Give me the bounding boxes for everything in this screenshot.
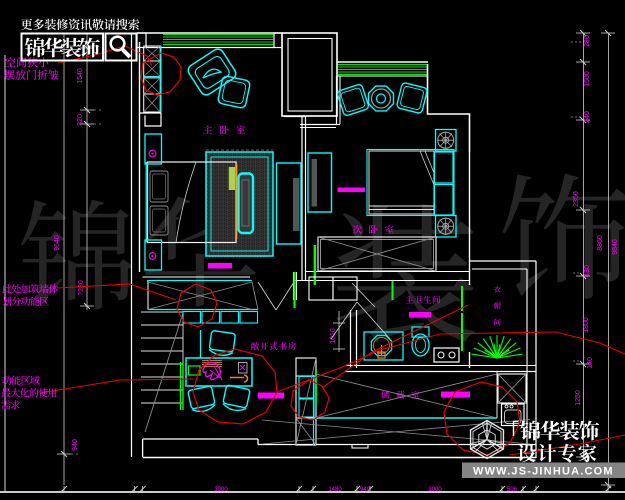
svg-text:240: 240 bbox=[584, 111, 591, 123]
svg-text:506: 506 bbox=[507, 487, 518, 493]
svg-text:1800: 1800 bbox=[583, 317, 590, 333]
svg-text:3000: 3000 bbox=[428, 487, 442, 493]
svg-text:1540: 1540 bbox=[77, 68, 84, 84]
svg-text:320: 320 bbox=[77, 114, 84, 126]
svg-text:140: 140 bbox=[587, 357, 594, 369]
svg-text:1500: 1500 bbox=[584, 71, 591, 87]
svg-text:130: 130 bbox=[584, 265, 591, 277]
svg-text:9640: 9640 bbox=[54, 235, 61, 251]
svg-text:940: 940 bbox=[360, 487, 371, 493]
svg-text:940: 940 bbox=[72, 439, 79, 451]
svg-text:WWW.JS-JINHUA.COM: WWW.JS-JINHUA.COM bbox=[473, 466, 614, 478]
svg-text:1480: 1480 bbox=[328, 487, 342, 493]
svg-text:7280: 7280 bbox=[78, 280, 85, 296]
svg-text:280: 280 bbox=[584, 35, 591, 47]
svg-text:2350: 2350 bbox=[573, 191, 580, 207]
svg-text:1250: 1250 bbox=[575, 390, 582, 406]
svg-text:8860: 8860 bbox=[597, 235, 604, 251]
svg-text:9840: 9840 bbox=[612, 239, 619, 255]
svg-text:3000: 3000 bbox=[214, 487, 228, 493]
